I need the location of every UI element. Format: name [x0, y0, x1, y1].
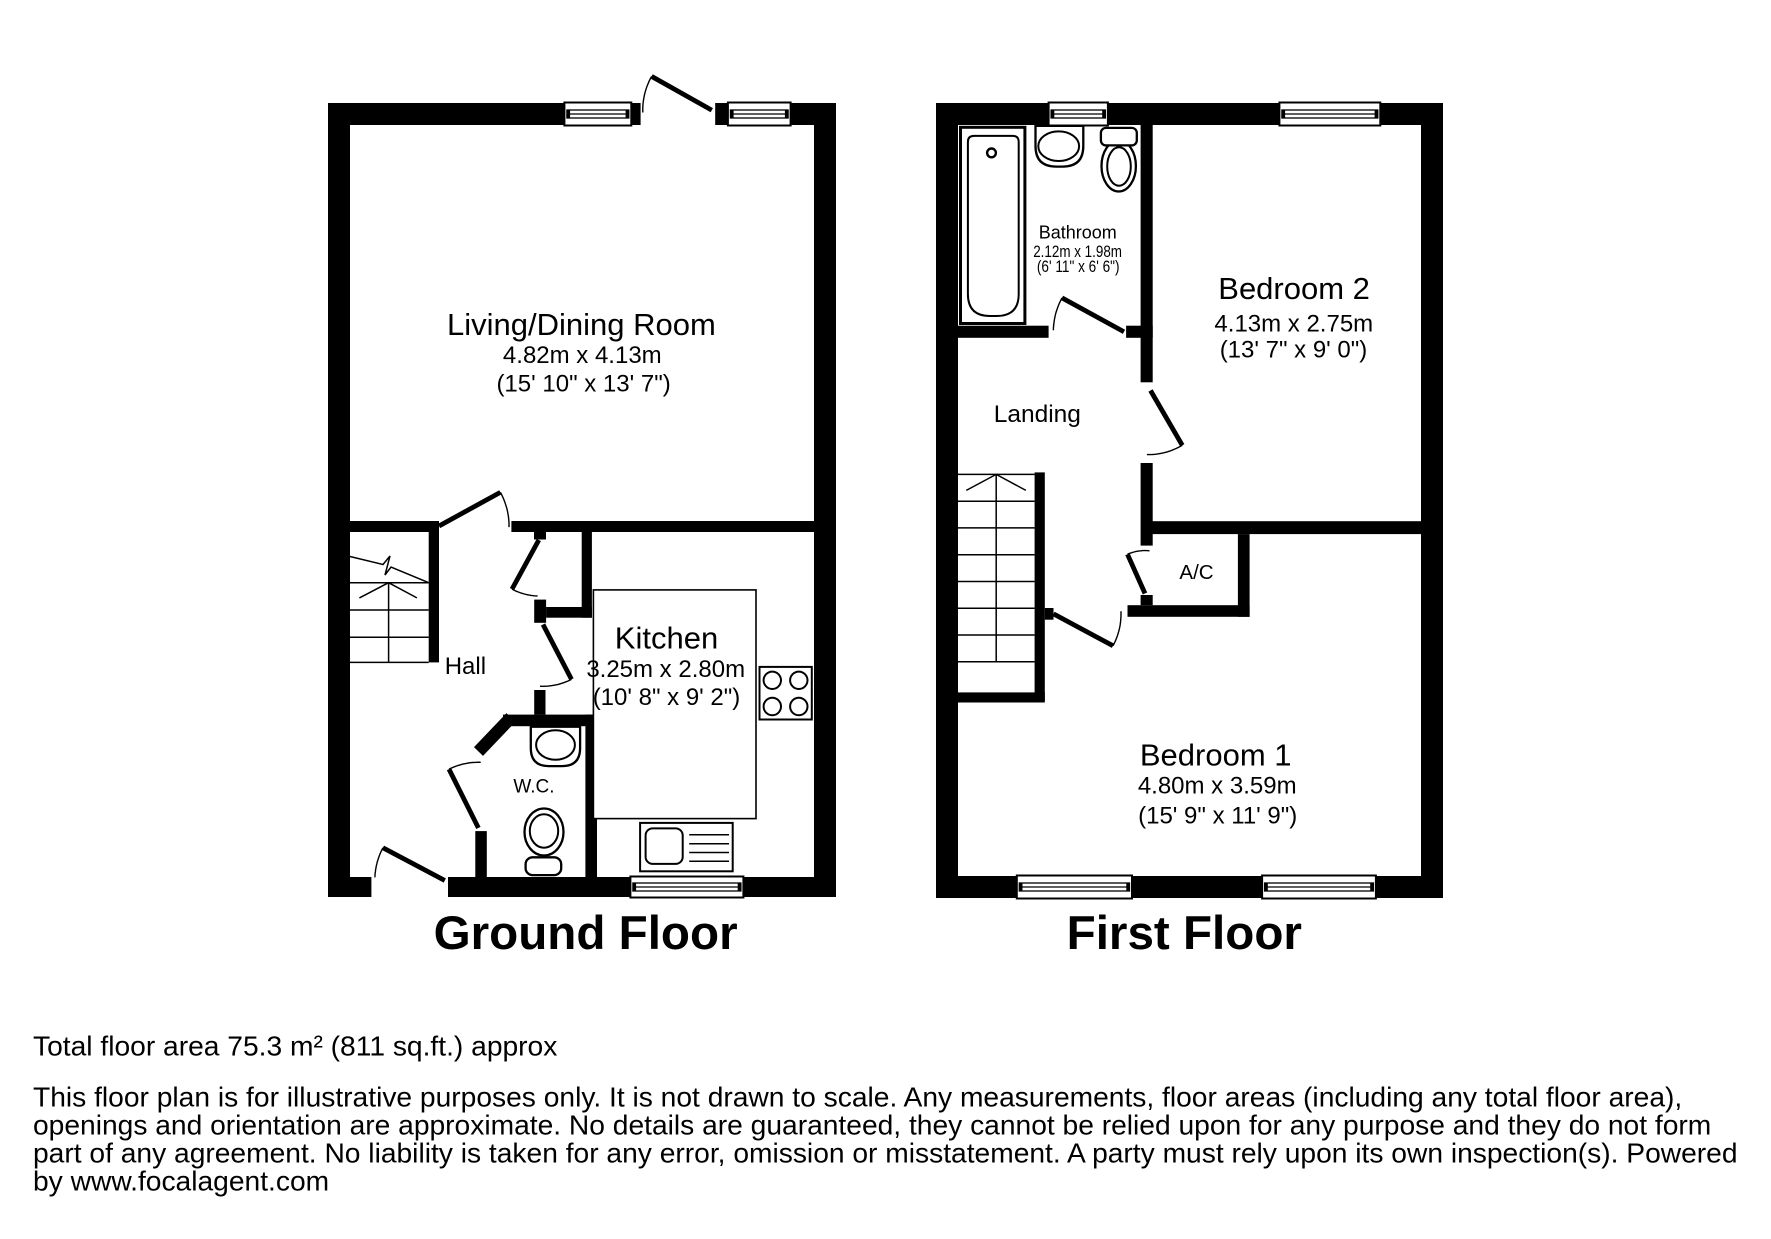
svg-text:(10' 8" x 9' 2"): (10' 8" x 9' 2") [593, 684, 741, 711]
svg-text:4.82m x 4.13m: 4.82m x 4.13m [503, 342, 662, 369]
svg-text:Total floor area 75.3 m² (811: Total floor area 75.3 m² (811 sq.ft.) ap… [33, 1030, 557, 1062]
svg-text:W.C.: W.C. [513, 777, 554, 798]
svg-text:Hall: Hall [445, 653, 486, 680]
svg-text:A/C: A/C [1179, 561, 1213, 584]
svg-text:First Floor: First Floor [1067, 907, 1302, 960]
svg-text:4.13m x 2.75m: 4.13m x 2.75m [1214, 311, 1373, 338]
svg-text:3.25m x 2.80m: 3.25m x 2.80m [586, 656, 745, 683]
svg-text:(15' 9" x 11' 9"): (15' 9" x 11' 9") [1138, 803, 1297, 830]
svg-text:Bedroom 2: Bedroom 2 [1218, 271, 1370, 306]
svg-text:(13' 7" x 9' 0"): (13' 7" x 9' 0") [1220, 337, 1368, 364]
svg-text:Living/Dining Room: Living/Dining Room [447, 307, 716, 342]
svg-text:Landing: Landing [994, 401, 1081, 428]
svg-text:(15' 10" x 13' 7"): (15' 10" x 13' 7") [496, 370, 670, 397]
svg-text:by www.focalagent.com: by www.focalagent.com [33, 1165, 329, 1197]
svg-text:Bedroom 1: Bedroom 1 [1140, 737, 1292, 772]
svg-text:Bathroom: Bathroom [1039, 222, 1117, 242]
svg-text:(6' 11" x 6' 6"): (6' 11" x 6' 6") [1037, 257, 1120, 276]
svg-text:4.80m x 3.59m: 4.80m x 3.59m [1138, 773, 1297, 800]
svg-text:Ground Floor: Ground Floor [434, 907, 738, 960]
svg-text:Kitchen: Kitchen [615, 621, 718, 656]
